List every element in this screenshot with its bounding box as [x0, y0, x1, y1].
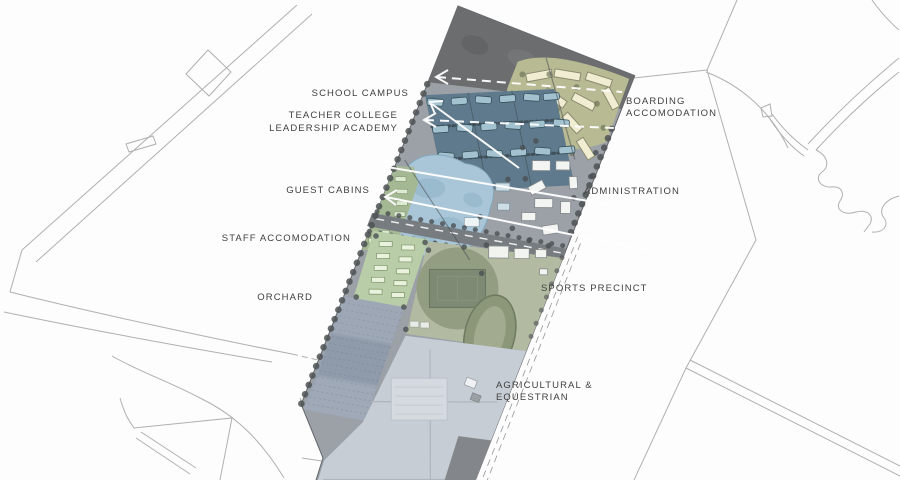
label-teacher-college-1: TEACHER COLLEGE — [289, 110, 398, 121]
label-staff-accomodation: STAFF ACCOMODATION — [222, 233, 351, 244]
label-boarding-2: ACCOMODATION — [626, 108, 717, 119]
label-teacher-college-2: LEADERSHIP ACADEMY — [269, 123, 398, 134]
label-agricultural-1: AGRICULTURAL & — [496, 380, 593, 391]
sports-field — [429, 269, 485, 307]
label-agricultural-2: EQUESTRIAN — [496, 392, 569, 403]
label-sports-precinct: SPORTS PRECINCT — [541, 283, 648, 294]
masterplan-canvas: SCHOOL CAMPUS TEACHER COLLEGE LEADERSHIP… — [0, 0, 900, 480]
equestrian-arena — [391, 378, 447, 420]
label-school-campus: SCHOOL CAMPUS — [312, 88, 409, 99]
label-guest-cabins: GUEST CABINS — [286, 185, 370, 196]
label-administration: ADMINISTRATION — [584, 186, 680, 197]
lake-pavilion — [464, 218, 479, 227]
label-orchard: ORCHARD — [257, 292, 313, 303]
label-boarding-1: BOARDING — [626, 96, 685, 107]
site-plan-map: SCHOOL CAMPUS TEACHER COLLEGE LEADERSHIP… — [0, 0, 900, 480]
